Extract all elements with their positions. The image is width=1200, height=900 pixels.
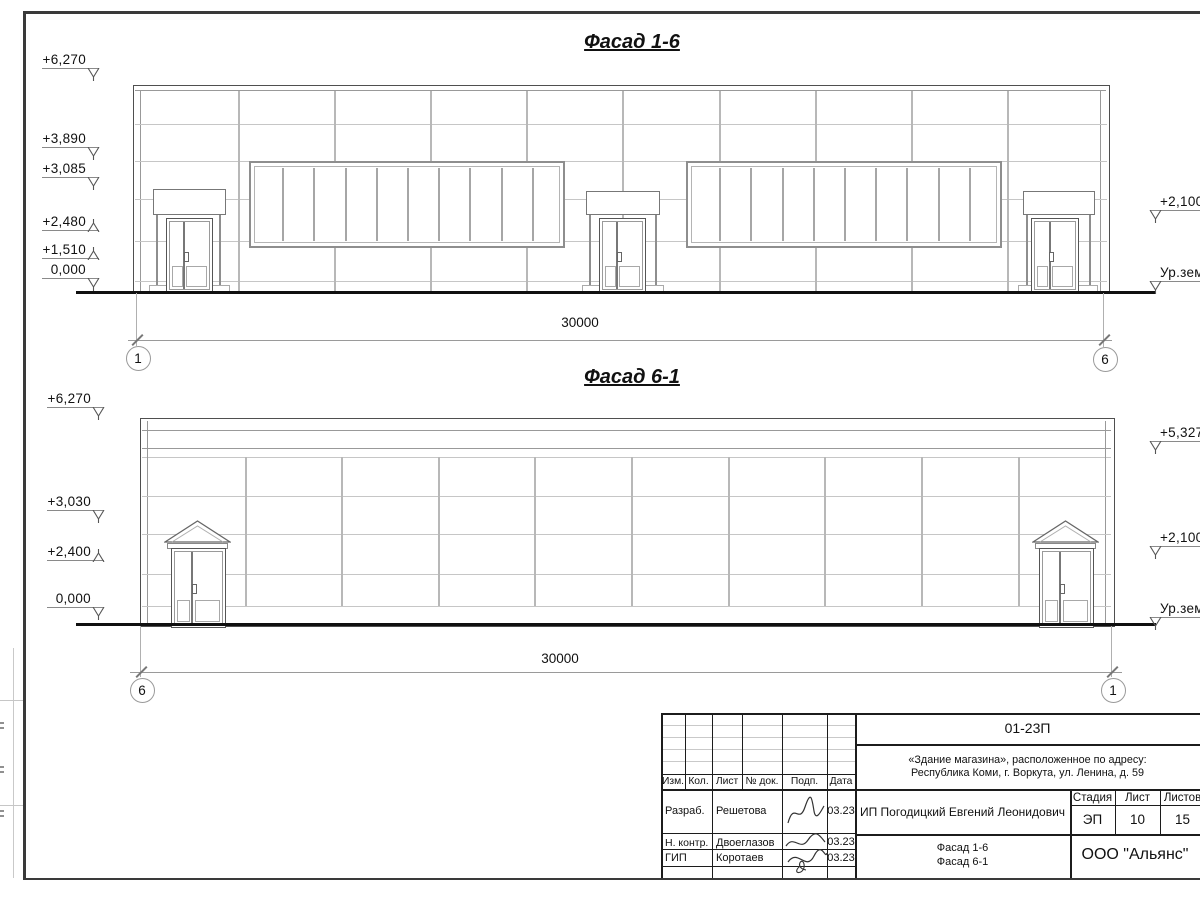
col-header-kol: Кол. xyxy=(685,776,712,787)
object-address-line2: Республика Коми, г. Воркута, ул. Ленина,… xyxy=(855,767,1200,779)
elevation-arrow-down-icon xyxy=(86,177,101,190)
elevation-value: +2,480 xyxy=(43,214,86,229)
stage-label: Стадия xyxy=(1070,792,1115,804)
door-panel xyxy=(619,266,640,287)
dimension-value: 30000 xyxy=(545,315,615,330)
wall-mullion xyxy=(1007,91,1009,291)
object-address-line1: «Здание магазина», расположенное по адре… xyxy=(855,754,1200,766)
elevation-mark: +5,327 xyxy=(1150,441,1200,442)
window-divider xyxy=(906,168,908,241)
wall-mullion xyxy=(1018,457,1020,606)
sig-row-role: Разраб. xyxy=(665,805,705,817)
elevation-value: 0,000 xyxy=(56,591,91,606)
elevation-arrow-up-icon xyxy=(91,549,106,562)
door-handle xyxy=(617,252,622,262)
pediment xyxy=(1032,519,1099,543)
sheet-frame-left xyxy=(23,11,26,880)
canopy-post xyxy=(589,213,591,291)
ribbon-window-left xyxy=(249,161,565,248)
sig-row-date: 03.23 xyxy=(827,805,855,817)
facade2-building xyxy=(140,418,1115,627)
side-strip-line xyxy=(13,648,14,878)
window-divider xyxy=(469,168,471,241)
entrance-door xyxy=(1039,548,1094,628)
elevation-arrow-down-icon xyxy=(1148,441,1163,454)
title-block-line xyxy=(855,744,1200,746)
wall-joint xyxy=(142,534,1111,535)
door-panel xyxy=(1037,266,1048,287)
side-strip-divider xyxy=(0,805,23,806)
elevation-value: 0,000 xyxy=(51,262,86,277)
col-header-izm: Изм. xyxy=(661,776,685,787)
elevation-arrow-down-icon xyxy=(86,278,101,291)
entrance-door xyxy=(1031,218,1079,293)
corner-pilaster-left xyxy=(147,421,148,624)
title-block-line xyxy=(855,834,1200,836)
wall-mullion xyxy=(921,457,923,606)
signature-razrab xyxy=(784,795,826,829)
sig-row-name: Коротаев xyxy=(716,852,764,864)
window-divider xyxy=(938,168,940,241)
dimension-value: 30000 xyxy=(525,651,595,666)
axis-number: 6 xyxy=(138,683,146,698)
elevation-value: +6,270 xyxy=(48,391,91,406)
door-panel xyxy=(186,266,207,287)
sheet-frame-top xyxy=(23,11,1200,14)
revision-row-line xyxy=(661,761,855,762)
ground-line-facade1 xyxy=(76,291,1156,294)
facade1-title: Фасад 1-6 xyxy=(460,31,804,54)
facade1-building xyxy=(133,85,1110,293)
ribbon-window-right xyxy=(686,161,1002,248)
elevation-arrow-down-icon xyxy=(86,147,101,160)
elevation-arrow-down-icon xyxy=(1148,210,1163,223)
window-divider xyxy=(719,168,721,241)
entrance-door xyxy=(599,218,646,293)
side-strip-text-fragment xyxy=(0,727,4,729)
elevation-mark: 0,000 xyxy=(42,278,99,279)
col-header-list: Лист xyxy=(712,776,742,787)
sig-row-date: 03.23 xyxy=(827,836,855,848)
wall-mullion xyxy=(438,457,440,606)
entrance-canopy xyxy=(586,191,660,215)
axis-bubble: 1 xyxy=(1101,678,1126,703)
side-strip-text-fragment xyxy=(0,815,4,817)
elevation-value: +3,030 xyxy=(48,494,91,509)
wall-joint xyxy=(142,457,1111,458)
window-divider xyxy=(282,168,284,241)
organization-name: ООО "Альянс" xyxy=(1070,846,1200,864)
window-divider xyxy=(782,168,784,241)
parapet-line xyxy=(142,430,1111,431)
revision-row-line xyxy=(661,749,855,750)
wall-mullion xyxy=(824,457,826,606)
elevation-mark: +2,480 xyxy=(42,230,99,231)
elevation-arrow-down-icon xyxy=(1148,546,1163,559)
elevation-value: +3,085 xyxy=(43,161,86,176)
door-handle xyxy=(1060,584,1065,594)
title-block-line xyxy=(1070,805,1200,806)
corner-pilaster-left xyxy=(140,90,141,291)
wall-joint xyxy=(142,606,1111,607)
window-divider xyxy=(813,168,815,241)
stage-value: ЭП xyxy=(1070,812,1115,827)
sig-row-name: Решетова xyxy=(716,805,766,817)
elevation-mark: +2,100 xyxy=(1150,546,1200,547)
wall-mullion xyxy=(728,457,730,606)
window-divider xyxy=(313,168,315,241)
entrance-canopy xyxy=(153,189,226,215)
col-header-podp: Подп. xyxy=(782,776,827,787)
sig-row-date: 03.23 xyxy=(827,852,855,864)
window-divider xyxy=(532,168,534,241)
window-divider xyxy=(844,168,846,241)
sheet-value: 10 xyxy=(1115,812,1160,827)
sig-row-role: ГИП xyxy=(665,852,687,864)
signature-nkontr-gip xyxy=(780,832,830,876)
canopy-post xyxy=(1089,213,1091,291)
window-divider xyxy=(345,168,347,241)
door-panel xyxy=(195,600,220,622)
wall-joint xyxy=(142,574,1111,575)
axis-bubble: 6 xyxy=(1093,347,1118,372)
title-block-line xyxy=(712,713,713,878)
door-panel xyxy=(1063,600,1088,622)
wall-joint xyxy=(135,124,1107,125)
canopy-post xyxy=(1026,213,1028,291)
drawing-sheet: { "facade1": { "title": "Фасад 1-6", "ma… xyxy=(0,0,1200,900)
dimension-line xyxy=(130,672,1122,673)
elevation-mark: +3,890 xyxy=(42,147,99,148)
entrance-door xyxy=(171,548,226,628)
door-panel xyxy=(605,266,616,287)
client-name: ИП Погодицкий Евгений Леонидович xyxy=(855,805,1070,819)
elevation-value: +6,270 xyxy=(43,52,86,67)
door-panel xyxy=(1045,600,1058,622)
canopy-post xyxy=(655,213,657,291)
sheets-label: Листов xyxy=(1160,792,1200,804)
sheets-value: 15 xyxy=(1160,812,1200,827)
window-divider xyxy=(750,168,752,241)
window-divider xyxy=(376,168,378,241)
ground-level-label: Ур.зем xyxy=(1160,265,1200,280)
sheet-label: Лист xyxy=(1115,792,1160,804)
title-block-line xyxy=(661,774,855,775)
elevation-value: +2,400 xyxy=(48,544,91,559)
wall-joint xyxy=(142,496,1111,497)
parapet-line xyxy=(135,90,1106,91)
axis-bubble: 6 xyxy=(130,678,155,703)
window-divider xyxy=(875,168,877,241)
door-panel xyxy=(177,600,190,622)
title-block: 01-23П «Здание магазина», расположенное … xyxy=(661,713,1200,878)
elevation-mark: +6,270 xyxy=(47,407,104,408)
axis-bubble: 1 xyxy=(126,346,151,371)
door-handle xyxy=(1049,252,1054,262)
elevation-mark: Ур.зем xyxy=(1150,617,1200,618)
title-block-line xyxy=(661,713,663,878)
canopy-post xyxy=(156,213,158,291)
wall-mullion xyxy=(631,457,633,606)
side-strip-text-fragment xyxy=(0,810,4,812)
drawing-title-line1: Фасад 1-6 xyxy=(855,842,1070,854)
ground-level-label: Ур.зем xyxy=(1160,601,1200,616)
col-header-data: Дата xyxy=(827,776,855,787)
elevation-value: +2,100 xyxy=(1160,530,1200,545)
axis-number: 6 xyxy=(1101,352,1109,367)
elevation-value: +1,510 xyxy=(43,242,86,257)
wall-mullion xyxy=(245,457,247,606)
door-panel xyxy=(172,266,183,287)
elevation-mark: +2,100 xyxy=(1150,210,1200,211)
entrance-door xyxy=(166,218,213,293)
side-strip-text-fragment xyxy=(0,722,4,724)
corner-pilaster-right xyxy=(1105,421,1106,624)
revision-row-line xyxy=(661,725,855,726)
elevation-arrow-down-icon xyxy=(86,68,101,81)
elevation-mark: +6,270 xyxy=(42,68,99,69)
parapet-line xyxy=(142,448,1111,449)
elevation-arrow-down-icon xyxy=(91,510,106,523)
elevation-arrow-down-icon xyxy=(91,607,106,620)
canopy-post xyxy=(219,213,221,291)
facade2-title: Фасад 6-1 xyxy=(460,366,804,389)
wall-mullion xyxy=(341,457,343,606)
elevation-mark: Ур.зем xyxy=(1150,281,1200,282)
window-divider xyxy=(501,168,503,241)
side-strip-text-fragment xyxy=(0,771,4,773)
sig-row-name: Двоеглазов xyxy=(716,837,774,849)
elevation-mark: +2,400 xyxy=(47,560,104,561)
elevation-mark: 0,000 xyxy=(47,607,104,608)
elevation-mark: +1,510 xyxy=(42,258,99,259)
elevation-arrow-up-icon xyxy=(86,219,101,232)
window-divider xyxy=(407,168,409,241)
side-strip-divider xyxy=(0,700,23,701)
drawing-title-line2: Фасад 6-1 xyxy=(855,856,1070,868)
elevation-arrow-down-icon xyxy=(1148,617,1163,630)
dimension-line xyxy=(128,340,1112,341)
entrance-canopy xyxy=(1023,191,1095,215)
elevation-arrow-down-icon xyxy=(91,407,106,420)
door-panel xyxy=(1052,266,1073,287)
window-divider xyxy=(969,168,971,241)
window-divider xyxy=(438,168,440,241)
col-header-doc: № док. xyxy=(742,776,782,787)
wall-mullion xyxy=(534,457,536,606)
door-handle xyxy=(184,252,189,262)
elevation-arrow-down-icon xyxy=(1148,281,1163,294)
elevation-value: +3,890 xyxy=(43,131,86,146)
axis-number: 1 xyxy=(134,351,142,366)
wall-mullion xyxy=(238,91,240,291)
elevation-mark: +3,085 xyxy=(42,177,99,178)
elevation-mark: +3,030 xyxy=(47,510,104,511)
ground-line-facade2 xyxy=(76,623,1156,626)
axis-number: 1 xyxy=(1109,683,1117,698)
pediment xyxy=(164,519,231,543)
door-handle xyxy=(192,584,197,594)
elevation-arrow-up-icon xyxy=(86,247,101,260)
revision-row-line xyxy=(661,737,855,738)
elevation-value: +2,100 xyxy=(1160,194,1200,209)
corner-pilaster-right xyxy=(1100,90,1101,291)
sig-row-role: Н. контр. xyxy=(665,837,708,849)
document-number: 01-23П xyxy=(855,720,1200,736)
side-strip-text-fragment xyxy=(0,766,4,768)
elevation-value: +5,327 xyxy=(1160,425,1200,440)
